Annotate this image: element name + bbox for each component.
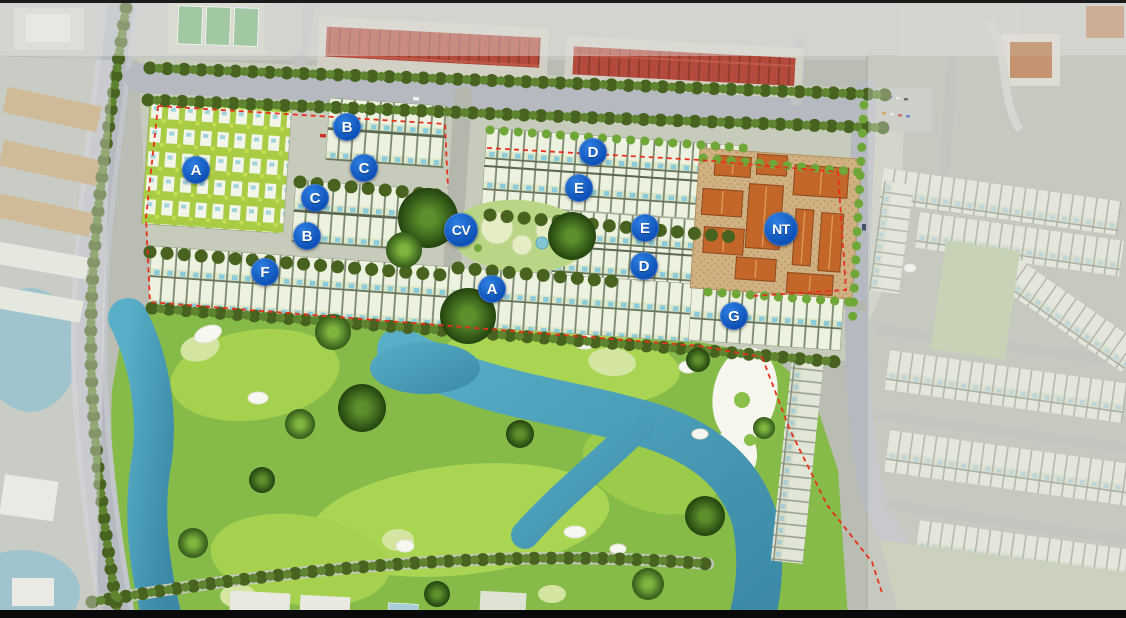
- zone-marker-c-2[interactable]: C: [350, 154, 378, 182]
- zone-marker-f-10[interactable]: F: [251, 258, 279, 286]
- zone-marker-a-0[interactable]: A: [182, 156, 210, 184]
- zone-marker-nt-13[interactable]: NT: [764, 212, 798, 246]
- zone-marker-d-6[interactable]: D: [579, 138, 607, 166]
- zone-marker-g-12[interactable]: G: [720, 302, 748, 330]
- zone-marker-c-3[interactable]: C: [301, 184, 329, 212]
- zone-marker-a-11[interactable]: A: [478, 275, 506, 303]
- zone-marker-d-9[interactable]: D: [630, 252, 658, 280]
- zone-marker-e-7[interactable]: E: [565, 174, 593, 202]
- zone-marker-e-8[interactable]: E: [631, 214, 659, 242]
- zone-marker-b-4[interactable]: B: [293, 222, 321, 250]
- zone-marker-b-1[interactable]: B: [333, 113, 361, 141]
- markers-layer: ABCCBCVDEEDFAGNT: [0, 0, 1126, 618]
- zone-marker-cv-5[interactable]: CV: [444, 213, 478, 247]
- masterplan-canvas: ABCCBCVDEEDFAGNT: [0, 0, 1126, 618]
